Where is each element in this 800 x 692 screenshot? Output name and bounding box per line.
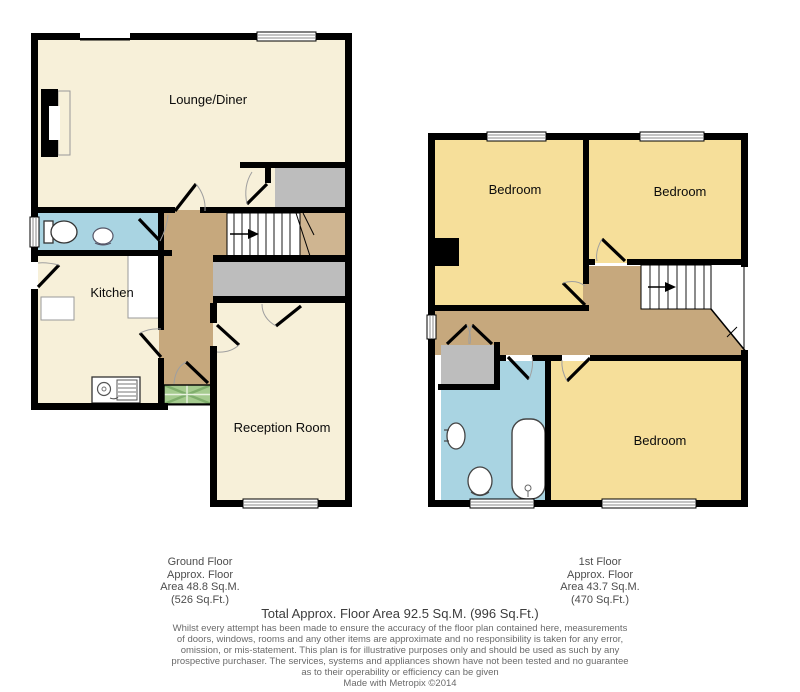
toilet-icon (44, 221, 77, 243)
window (427, 315, 436, 339)
metropix-credit: Made with Metropix ©2014 (80, 678, 720, 689)
caption-line: Approx. Floor (100, 569, 300, 582)
total-area-text: Total Approx. Floor Area 92.5 Sq.M. (996… (0, 606, 800, 621)
caption-line: Area 43.7 Sq.M. (500, 581, 700, 594)
room-bedroom-2 (589, 140, 741, 263)
window (487, 132, 546, 141)
first-floor-plan: Bedroom Bedroom Bedroom (427, 132, 748, 508)
room-reception (213, 303, 348, 503)
disclaimer-line: of doors, windows, rooms and any other i… (80, 634, 720, 645)
first-floor-caption: 1st Floor Approx. Floor Area 43.7 Sq.M. … (500, 556, 700, 606)
fireplace (41, 89, 70, 157)
floorplan-page: Lounge/Diner Kitchen Reception Room (0, 0, 800, 692)
ground-floor-plan: Lounge/Diner Kitchen Reception Room (30, 32, 352, 508)
room-store-lower (213, 262, 348, 298)
cupboard (441, 345, 494, 386)
room-label-reception: Reception Room (234, 420, 331, 435)
disclaimer-text: Whilst every attempt has been made to en… (80, 623, 720, 689)
bath-icon (512, 419, 545, 499)
room-bedroom-3 (551, 361, 741, 500)
room-label-bedroom-1: Bedroom (489, 182, 542, 197)
window (30, 217, 39, 247)
hallway-right (296, 211, 348, 257)
disclaimer-line: as to their operability or efficiency ca… (80, 667, 720, 678)
room-store-upper (275, 166, 348, 210)
caption-line: Ground Floor (100, 556, 300, 569)
chimney-breast (435, 238, 459, 266)
window (470, 499, 534, 508)
room-bedroom-1 (435, 140, 583, 308)
room-label-lounge: Lounge/Diner (169, 92, 248, 107)
kitchen-counter-left (41, 297, 74, 320)
disclaimer-line: Whilst every attempt has been made to en… (80, 623, 720, 634)
kitchen-sink-unit (92, 377, 140, 403)
caption-line: Area 48.8 Sq.M. (100, 581, 300, 594)
room-label-bedroom-3: Bedroom (634, 433, 687, 448)
window (602, 499, 696, 508)
porch-tiles (164, 385, 211, 404)
caption-line: 1st Floor (500, 556, 700, 569)
caption-line: (470 Sq.Ft.) (500, 594, 700, 607)
toilet-icon (468, 467, 492, 496)
window (640, 132, 704, 141)
room-label-kitchen: Kitchen (90, 285, 133, 300)
room-label-bedroom-2: Bedroom (654, 184, 707, 199)
disclaimer-line: prospective purchaser. The services, sys… (80, 656, 720, 667)
wc-sink-icon (93, 228, 113, 245)
window (243, 499, 318, 508)
disclaimer-line: omission, or mis-statement. This plan is… (80, 645, 720, 656)
caption-line: (526 Sq.Ft.) (100, 594, 300, 607)
ground-floor-caption: Ground Floor Approx. Floor Area 48.8 Sq.… (100, 556, 300, 606)
caption-line: Approx. Floor (500, 569, 700, 582)
window (257, 32, 316, 41)
